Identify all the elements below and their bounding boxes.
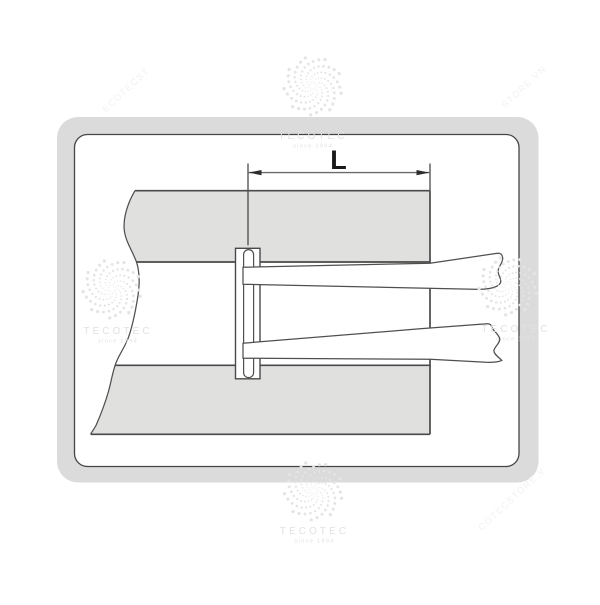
svg-text:since 1994: since 1994 bbox=[294, 539, 334, 545]
svg-text:TECOTEC: TECOTEC bbox=[278, 131, 347, 142]
svg-text:TECOTEC: TECOTEC bbox=[280, 526, 349, 537]
svg-text:TECOTEC: TECOTEC bbox=[481, 324, 550, 335]
svg-text:since 1994: since 1994 bbox=[293, 144, 333, 150]
svg-text:L: L bbox=[330, 145, 347, 175]
svg-text:TECOTEC: TECOTEC bbox=[83, 326, 152, 337]
svg-text:since 1994: since 1994 bbox=[98, 339, 138, 345]
svg-text:since 1994: since 1994 bbox=[496, 337, 536, 343]
